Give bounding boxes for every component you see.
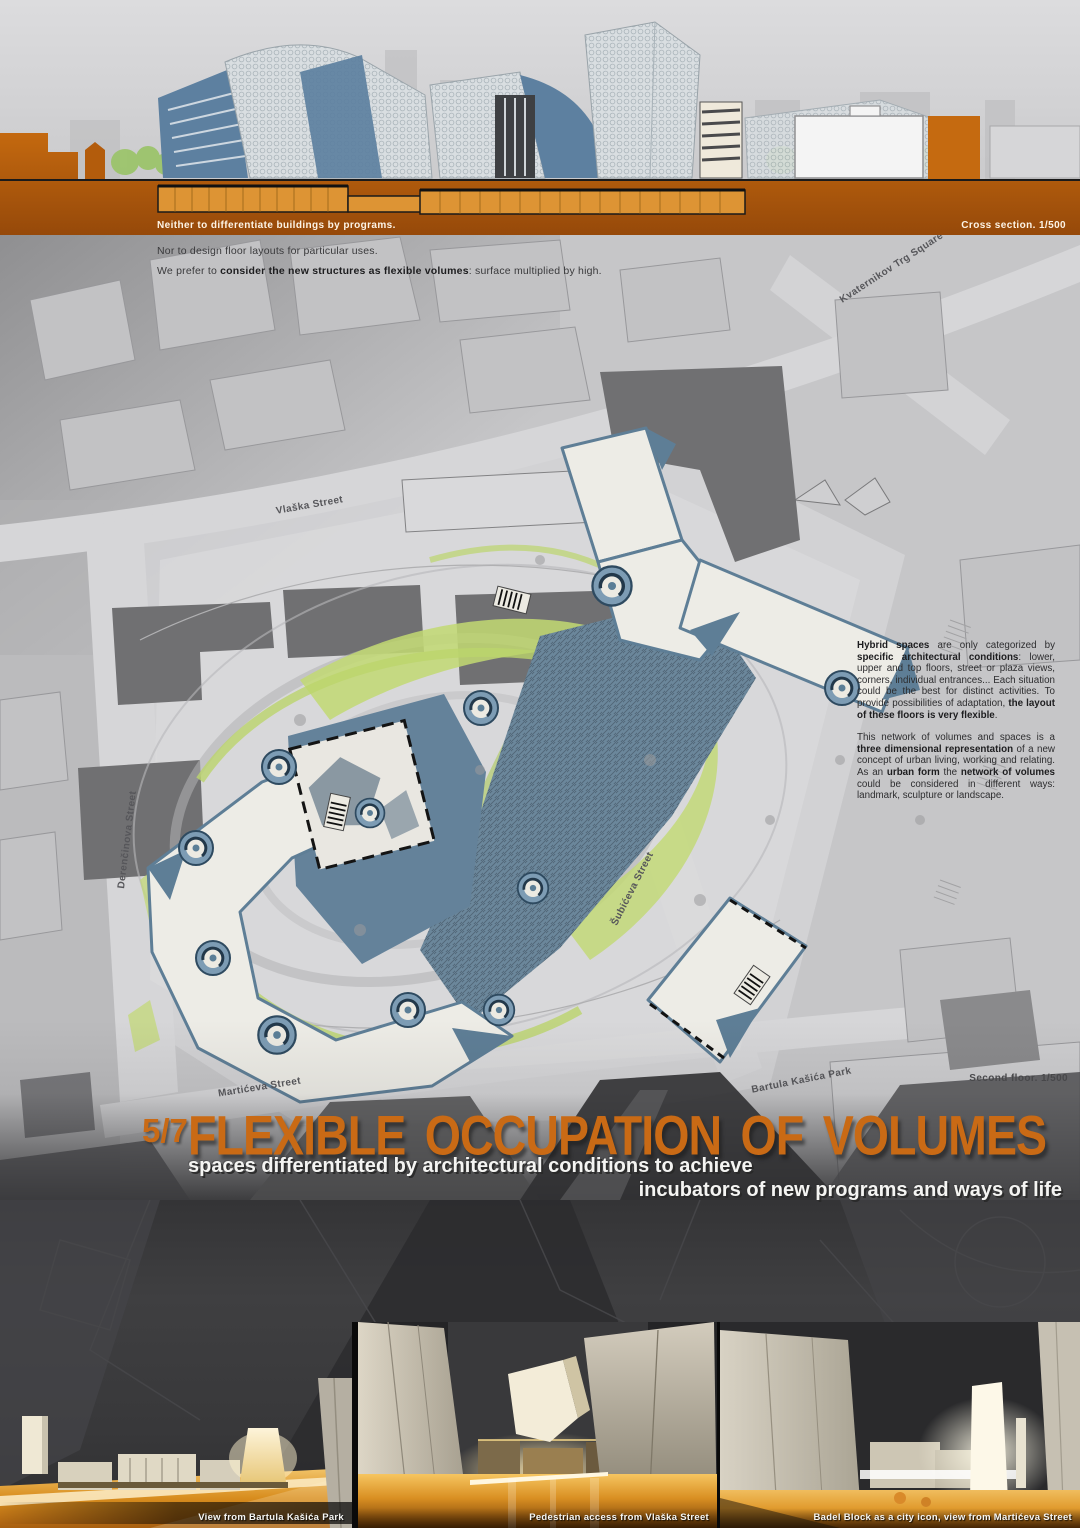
subtitle-line-1: spaces differentiated by architectural c…: [188, 1155, 753, 1178]
statement-line-2: Nor to design floor layouts for particul…: [157, 245, 378, 257]
concept-text-block: Hybrid spaces are only categorized by sp…: [857, 640, 1055, 813]
render-access-image: [358, 1322, 717, 1528]
render-view-park: View from Bartula Kašića Park: [0, 1378, 352, 1528]
hybrid-spaces-paragraph: Hybrid spaces are only categorized by sp…: [857, 640, 1055, 721]
subtitle-line-2: incubators of new programs and ways of l…: [639, 1179, 1062, 1202]
render-caption: View from Bartula Kašića Park: [198, 1512, 344, 1523]
network-paragraph: This network of volumes and spaces is a …: [857, 732, 1055, 802]
underground-section: [158, 186, 745, 214]
cross-section-panel: [0, 0, 1080, 235]
section-caption: Neither to differentiate buildings by pr…: [157, 220, 396, 231]
render-park-image: [0, 1378, 352, 1528]
render-caption: Badel Block as a city icon, view from Ma…: [813, 1512, 1072, 1523]
render-caption: Pedestrian access from Vlaška Street: [529, 1512, 709, 1523]
section-scale-label: Cross section. 1/500: [961, 220, 1066, 231]
render-divider: [717, 1322, 720, 1528]
cross-section-drawing: [0, 0, 1080, 235]
render-divider: [352, 1322, 358, 1528]
render-city-icon: Badel Block as a city icon, view from Ma…: [720, 1322, 1080, 1528]
statement-line-3: We prefer to consider the new structures…: [157, 265, 602, 277]
render-pedestrian-access: Pedestrian access from Vlaška Street: [358, 1322, 717, 1528]
competition-board: Neither to differentiate buildings by pr…: [0, 0, 1080, 1528]
page-number: 5/7: [142, 1112, 188, 1150]
render-icon-image: [720, 1322, 1080, 1528]
renders-panel: View from Bartula Kašića Park: [0, 1200, 1080, 1528]
